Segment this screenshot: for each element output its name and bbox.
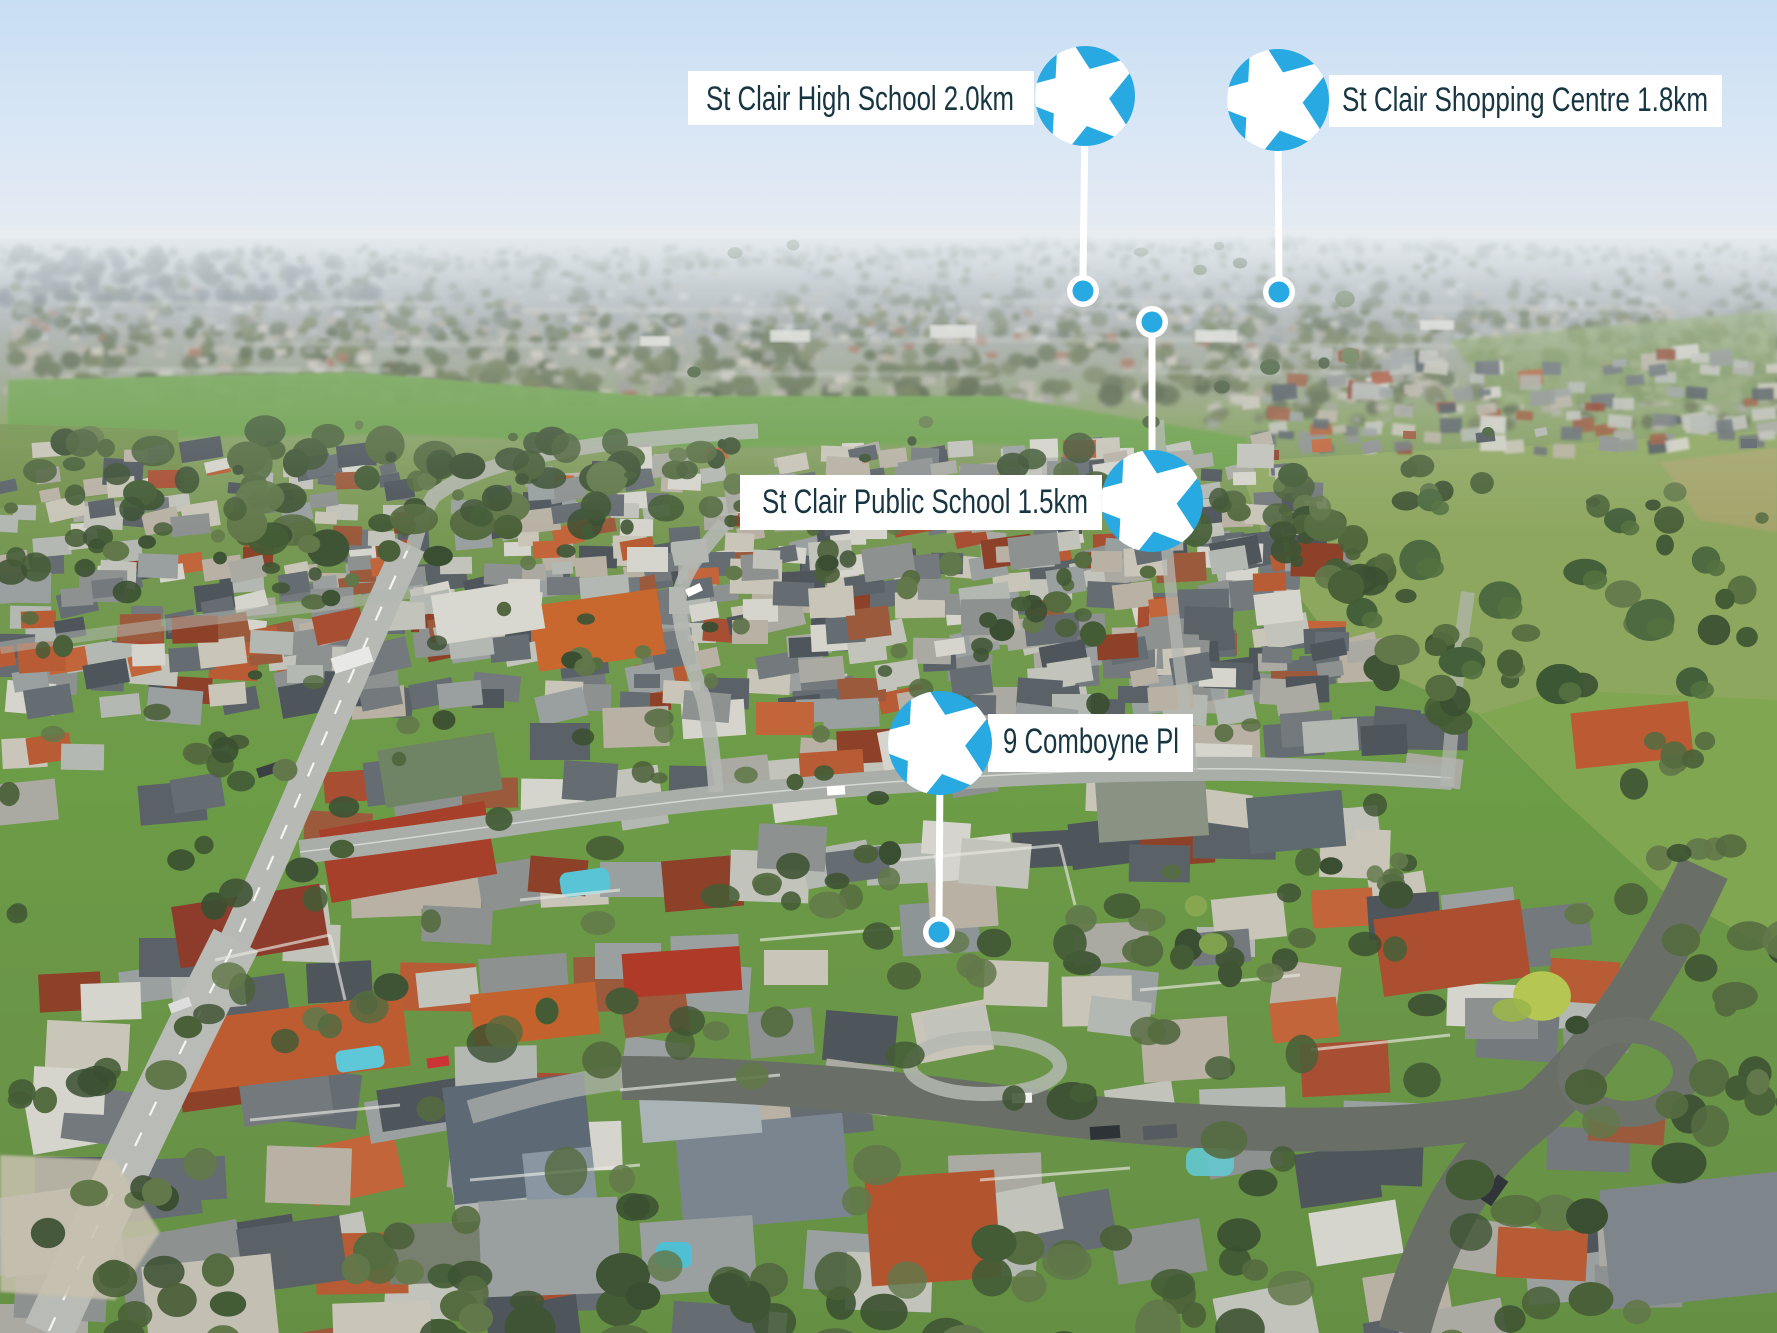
svg-text:St Clair Public School 1.5km: St Clair Public School 1.5km: [762, 483, 1088, 521]
svg-text:St Clair High School 2.0km: St Clair High School 2.0km: [706, 80, 1014, 118]
svg-text:St Clair Shopping Centre 1.8km: St Clair Shopping Centre 1.8km: [1342, 81, 1708, 119]
svg-text:9 Comboyne Pl: 9 Comboyne Pl: [1003, 722, 1179, 761]
